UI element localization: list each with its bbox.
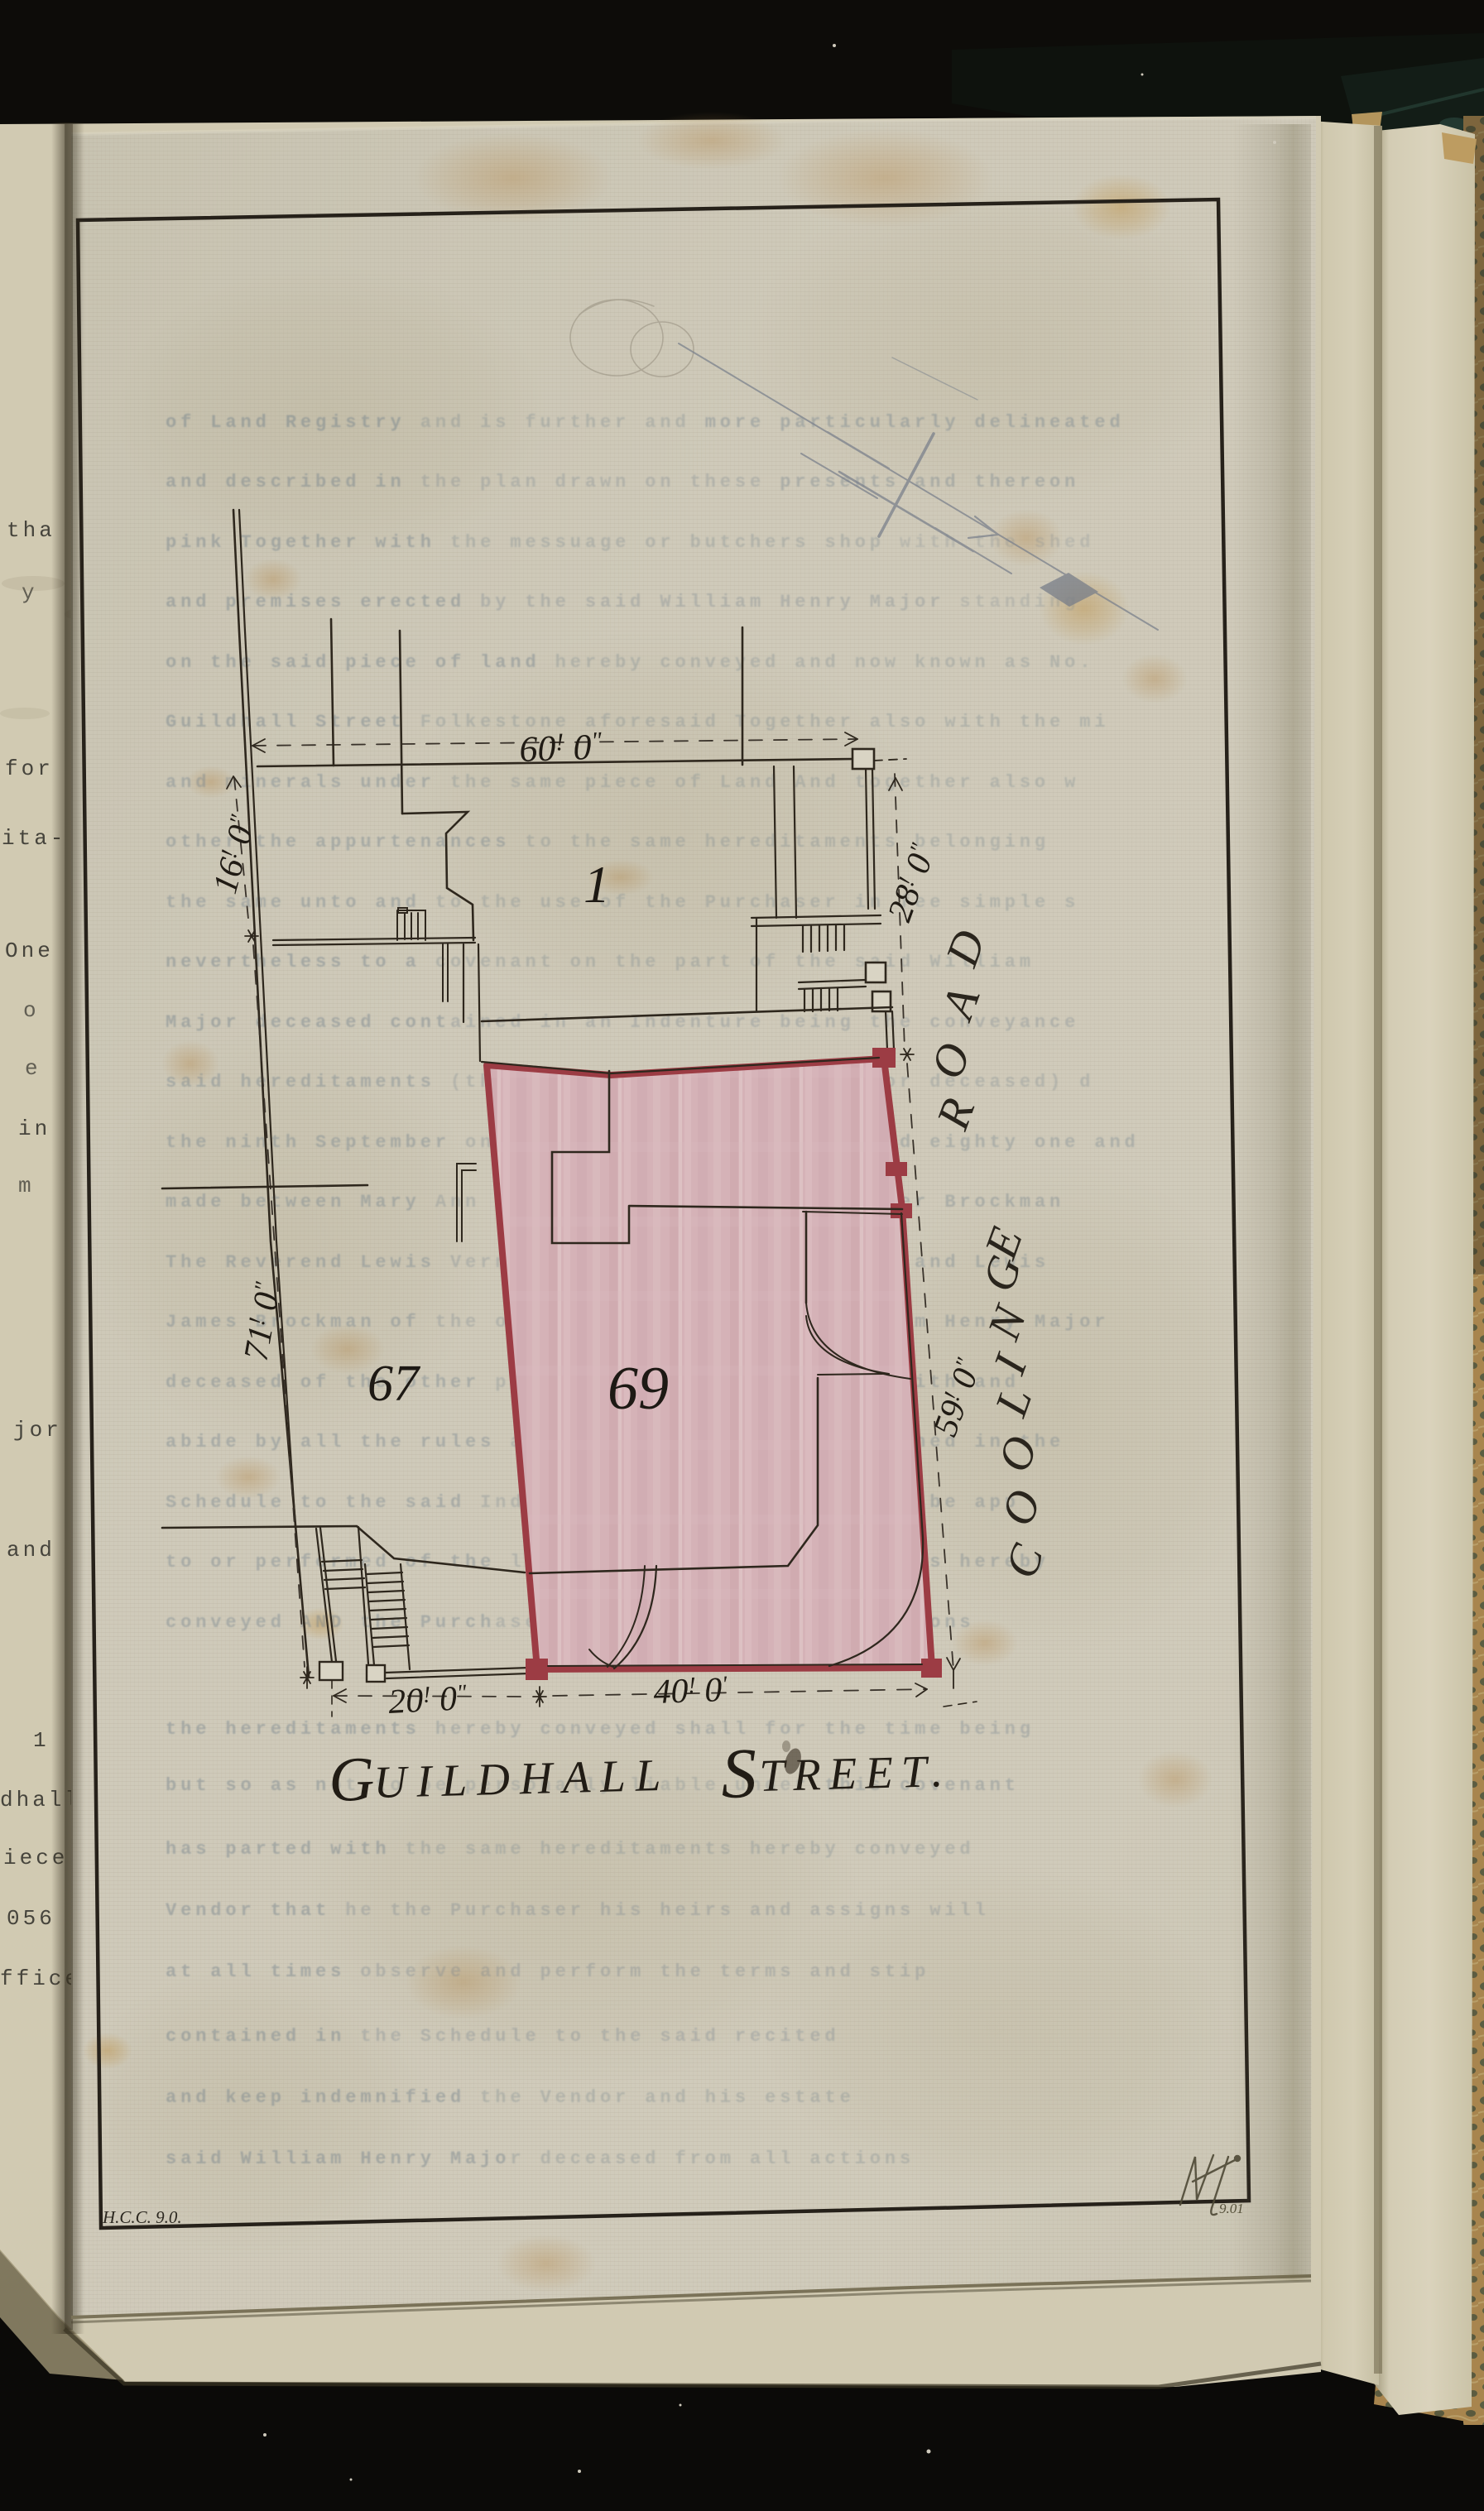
svg-text:e: e bbox=[25, 1056, 41, 1081]
svg-text:G: G bbox=[328, 1745, 375, 1815]
svg-text:m: m bbox=[18, 1174, 35, 1198]
svg-text:and minerals under the same pi: and minerals under the same piece of Lan… bbox=[166, 772, 1079, 793]
svg-text:tha: tha bbox=[7, 518, 55, 543]
svg-text:S: S bbox=[720, 1733, 757, 1813]
svg-text:1: 1 bbox=[33, 1728, 50, 1753]
svg-text:056: 056 bbox=[7, 1906, 55, 1931]
svg-text:67: 67 bbox=[367, 1356, 421, 1412]
svg-text:H.C.C. 9.0.: H.C.C. 9.0. bbox=[102, 2207, 182, 2227]
svg-text:of Land Registry and is furthe: of Land Registry and is further and more… bbox=[166, 412, 1125, 433]
svg-text:on the said piece of land here: on the said piece of land hereby conveye… bbox=[166, 652, 1094, 673]
svg-text:69: 69 bbox=[608, 1355, 669, 1423]
svg-text:UILDHALL: UILDHALL bbox=[373, 1750, 671, 1808]
svg-text:pink Together with the messuag: pink Together with the messuage or butch… bbox=[166, 532, 1094, 553]
svg-text:for: for bbox=[5, 756, 54, 781]
svg-text:the same unto and to the use o: the same unto and to the use of the Purc… bbox=[166, 892, 1079, 913]
svg-text:has parted with the same hered: has parted with the same hereditaments h… bbox=[166, 1839, 975, 1860]
svg-text:o: o bbox=[23, 998, 40, 1023]
svg-text:and described in the plan draw: and described in the plan drawn on these… bbox=[166, 472, 1079, 492]
svg-text:One: One bbox=[5, 939, 54, 963]
svg-text:and keep indemnified the Vendo: and keep indemnified the Vendor and his … bbox=[166, 2087, 855, 2108]
svg-text:in: in bbox=[18, 1116, 50, 1141]
svg-text:nevertheless to a covenant on: nevertheless to a covenant on the part o… bbox=[166, 952, 1035, 972]
svg-text:and premises erected by the sa: and premises erected by the said William… bbox=[166, 592, 1079, 612]
svg-text:Guildhall Street Folkestone af: Guildhall Street Folkestone aforesaid To… bbox=[166, 712, 1109, 732]
svg-text:at all times observe and perfo: at all times observe and perform the ter… bbox=[166, 1961, 929, 1982]
svg-text:said William Henry Major decea: said William Henry Major deceased from a… bbox=[166, 2149, 915, 2169]
svg-text:Major deceased contained in an: Major deceased contained in an Indenture… bbox=[166, 1012, 1079, 1033]
svg-text:1: 1 bbox=[584, 855, 610, 914]
svg-text:and: and bbox=[7, 1538, 55, 1563]
svg-text:Vendor that he the Purchaser h: Vendor that he the Purchaser his heirs a… bbox=[166, 1900, 990, 1921]
svg-text:contained in the Schedule to t: contained in the Schedule to the said re… bbox=[166, 2026, 840, 2047]
svg-text:the hereditaments hereby conve: the hereditaments hereby conveyed shall … bbox=[166, 1719, 1035, 1740]
